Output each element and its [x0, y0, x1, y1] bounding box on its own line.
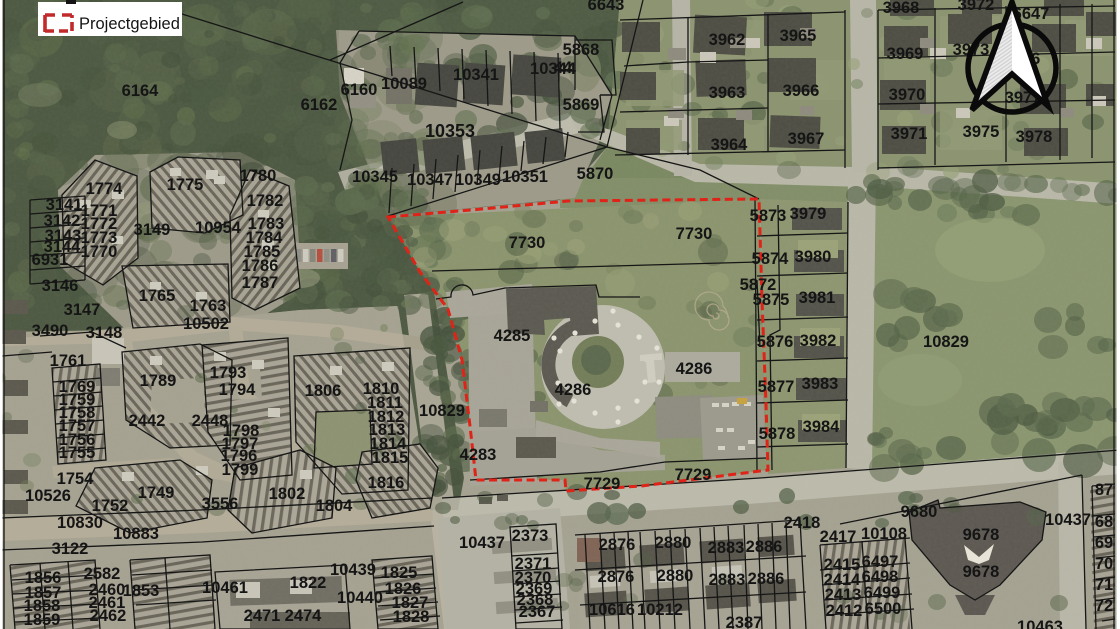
svg-text:3148: 3148 [86, 324, 123, 342]
svg-text:70: 70 [1095, 555, 1113, 573]
svg-text:1755: 1755 [59, 444, 96, 462]
svg-text:1786: 1786 [242, 257, 279, 275]
svg-text:5876: 5876 [757, 333, 794, 351]
svg-text:69: 69 [1095, 534, 1113, 552]
svg-text:10089: 10089 [381, 75, 427, 93]
svg-text:1802: 1802 [269, 485, 306, 503]
svg-text:1789: 1789 [140, 372, 177, 390]
svg-text:10212: 10212 [637, 601, 683, 619]
svg-text:10437: 10437 [459, 534, 505, 552]
svg-text:1815: 1815 [372, 449, 409, 467]
svg-text:2876: 2876 [599, 536, 636, 554]
svg-text:5870: 5870 [577, 165, 614, 183]
svg-text:1774: 1774 [86, 180, 124, 198]
svg-text:3979: 3979 [790, 205, 827, 223]
svg-text:Projectgebied: Projectgebied [79, 15, 180, 33]
svg-text:3965: 3965 [780, 27, 817, 45]
svg-text:87: 87 [1095, 481, 1113, 499]
svg-text:1775: 1775 [167, 176, 204, 194]
svg-text:6931: 6931 [32, 251, 69, 269]
svg-text:5874: 5874 [752, 250, 790, 268]
svg-text:1770: 1770 [81, 243, 118, 261]
svg-text:3971: 3971 [891, 125, 928, 143]
svg-text:7729: 7729 [675, 466, 712, 484]
svg-text:9680: 9680 [901, 503, 938, 521]
svg-text:3964: 3964 [711, 136, 749, 154]
svg-text:2883: 2883 [709, 571, 746, 589]
svg-text:10345: 10345 [352, 168, 398, 186]
svg-text:2880: 2880 [657, 567, 694, 585]
svg-text:10349: 10349 [455, 171, 501, 189]
svg-text:1787: 1787 [242, 274, 279, 292]
svg-text:10461: 10461 [202, 579, 248, 597]
svg-text:2367: 2367 [519, 603, 556, 621]
svg-text:10883: 10883 [113, 525, 159, 543]
svg-text:3146: 3146 [42, 277, 79, 295]
svg-text:1780: 1780 [240, 167, 277, 185]
svg-text:4283: 4283 [460, 446, 497, 464]
svg-text:2880: 2880 [655, 534, 692, 552]
svg-text:10353: 10353 [425, 121, 475, 141]
svg-text:3490: 3490 [32, 322, 69, 340]
svg-text:3966: 3966 [783, 82, 820, 100]
svg-text:2418: 2418 [784, 514, 821, 532]
svg-text:3967: 3967 [788, 130, 825, 148]
svg-text:6162: 6162 [301, 96, 338, 114]
svg-text:10440: 10440 [337, 589, 383, 607]
svg-text:1763: 1763 [190, 297, 227, 315]
svg-text:1828: 1828 [393, 608, 430, 626]
svg-text:3969: 3969 [887, 45, 924, 63]
svg-text:10616: 10616 [589, 601, 635, 619]
svg-text:44: 44 [554, 59, 573, 77]
svg-text:1754: 1754 [57, 470, 95, 488]
svg-text:2883: 2883 [708, 539, 745, 557]
svg-text:5869: 5869 [563, 96, 600, 114]
svg-text:4286: 4286 [555, 381, 592, 399]
svg-text:10437: 10437 [1045, 511, 1091, 529]
svg-text:1794: 1794 [219, 381, 257, 399]
svg-text:2417: 2417 [820, 528, 857, 546]
svg-text:72: 72 [1095, 597, 1113, 615]
svg-text:10108: 10108 [861, 525, 907, 543]
svg-text:2471: 2471 [244, 607, 281, 625]
svg-text:5873: 5873 [750, 207, 787, 225]
svg-text:3968: 3968 [883, 0, 920, 17]
svg-text:6164: 6164 [122, 82, 160, 100]
svg-text:3978: 3978 [1016, 128, 1053, 146]
svg-text:4285: 4285 [494, 327, 531, 345]
svg-text:5875: 5875 [753, 291, 790, 309]
svg-text:6500: 6500 [865, 600, 902, 618]
svg-text:2876: 2876 [598, 568, 635, 586]
svg-text:2373: 2373 [512, 527, 549, 545]
svg-text:1761: 1761 [50, 352, 87, 370]
svg-text:3980: 3980 [795, 248, 832, 266]
svg-text:3972: 3972 [958, 0, 995, 14]
svg-text:1859: 1859 [24, 611, 61, 629]
svg-text:1804: 1804 [316, 497, 354, 515]
svg-text:68: 68 [1095, 513, 1113, 531]
svg-text:5877: 5877 [758, 378, 795, 396]
svg-text:10830: 10830 [57, 514, 103, 532]
svg-text:1816: 1816 [368, 474, 405, 492]
svg-text:1799: 1799 [222, 461, 259, 479]
svg-text:7730: 7730 [509, 234, 546, 252]
svg-text:3149: 3149 [134, 221, 171, 239]
svg-text:1782: 1782 [247, 192, 284, 210]
svg-text:1822: 1822 [290, 574, 327, 592]
svg-text:10502: 10502 [183, 315, 229, 333]
svg-text:10829: 10829 [419, 402, 465, 420]
svg-text:1752: 1752 [92, 497, 129, 515]
svg-text:1853: 1853 [123, 582, 160, 600]
svg-text:2462: 2462 [90, 607, 127, 625]
svg-text:1793: 1793 [210, 364, 247, 382]
svg-text:6160: 6160 [341, 81, 378, 99]
svg-text:10439: 10439 [330, 561, 376, 579]
svg-text:5878: 5878 [759, 425, 796, 443]
svg-text:7730: 7730 [676, 225, 713, 243]
svg-text:10954: 10954 [195, 219, 242, 237]
svg-text:1749: 1749 [138, 484, 175, 502]
svg-text:2442: 2442 [129, 412, 166, 430]
svg-text:3963: 3963 [709, 84, 746, 102]
svg-text:3962: 3962 [709, 31, 746, 49]
svg-text:2886: 2886 [746, 538, 783, 556]
svg-text:2412: 2412 [826, 602, 863, 620]
svg-text:2474: 2474 [285, 607, 323, 625]
svg-text:10463: 10463 [1017, 618, 1063, 629]
svg-text:3982: 3982 [800, 332, 837, 350]
svg-text:2886: 2886 [748, 570, 785, 588]
svg-text:3556: 3556 [202, 495, 239, 513]
svg-text:3983: 3983 [802, 375, 839, 393]
svg-text:10829: 10829 [923, 333, 969, 351]
svg-text:9678: 9678 [963, 526, 1000, 544]
svg-text:1765: 1765 [139, 287, 176, 305]
svg-text:5868: 5868 [563, 41, 600, 59]
svg-text:10341: 10341 [453, 66, 499, 84]
svg-text:10351: 10351 [502, 168, 548, 186]
svg-text:71: 71 [1095, 576, 1113, 594]
svg-text:10347: 10347 [407, 171, 453, 189]
svg-text:10526: 10526 [25, 487, 71, 505]
svg-text:3122: 3122 [52, 540, 89, 558]
svg-text:3147: 3147 [64, 301, 101, 319]
svg-text:9678: 9678 [963, 563, 1000, 581]
svg-text:2387: 2387 [726, 614, 763, 629]
svg-text:3984: 3984 [803, 418, 841, 436]
svg-text:7729: 7729 [584, 475, 621, 493]
svg-text:3970: 3970 [889, 86, 926, 104]
svg-text:1806: 1806 [305, 382, 342, 400]
svg-text:4286: 4286 [676, 360, 713, 378]
svg-text:3981: 3981 [799, 289, 836, 307]
svg-text:6643: 6643 [588, 0, 625, 14]
svg-text:3975: 3975 [963, 123, 1000, 141]
